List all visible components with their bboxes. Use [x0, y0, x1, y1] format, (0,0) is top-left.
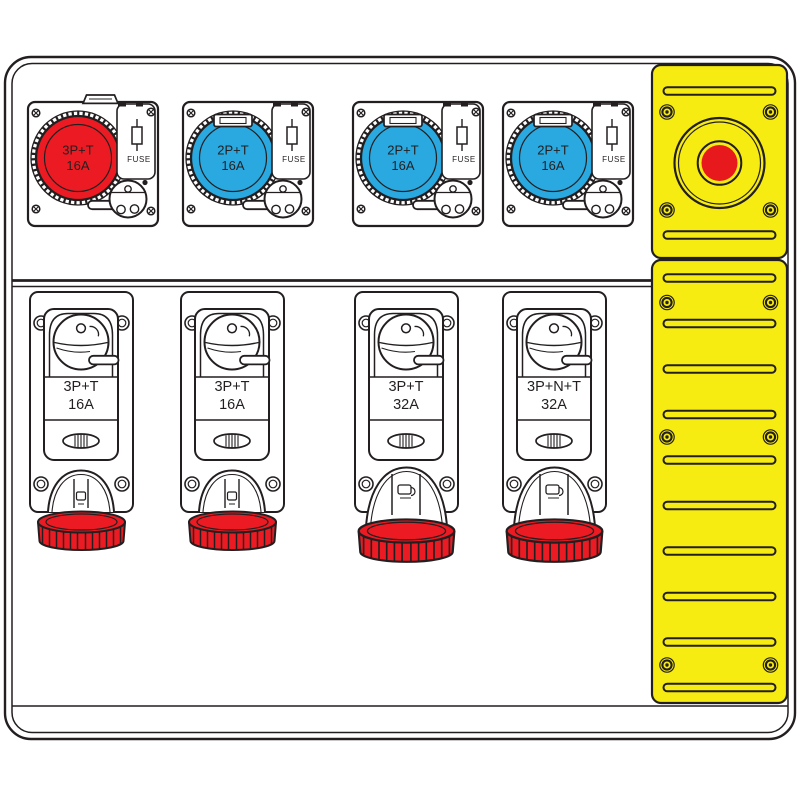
- socket-type-label: 3P+T: [63, 379, 98, 395]
- socket-unit-body: [28, 102, 158, 226]
- top-socket-unit-1: 3P+T 16A FUSE: [28, 95, 158, 226]
- socket-amp-label: 16A: [68, 397, 94, 413]
- socket-type-label: 3P+T: [62, 143, 93, 158]
- socket-amp-label: 32A: [541, 397, 567, 413]
- estop-red-cap: [702, 145, 738, 181]
- socket-amp-label: 32A: [393, 397, 419, 413]
- vent-panel: [652, 260, 787, 703]
- lid-clip: [384, 115, 422, 127]
- protection-cap: [38, 512, 125, 551]
- top-socket-unit-2: 2P+T 16A FUSE: [183, 102, 313, 226]
- fuse-label: FUSE: [452, 155, 476, 164]
- socket-type-label: 2P+T: [387, 143, 418, 158]
- screw-icon: [763, 105, 777, 119]
- bottom-socket-unit-1: 3P+T 16A: [30, 292, 133, 550]
- lid-clip: [534, 115, 572, 127]
- protection-cap: [359, 519, 455, 561]
- mounting-tab: [83, 95, 118, 103]
- fuse-label: FUSE: [127, 155, 151, 164]
- screw-icon: [763, 430, 777, 444]
- socket-type-label: 2P+T: [537, 143, 568, 158]
- socket-type-label: 3P+T: [388, 379, 423, 395]
- socket-type-label: 3P+N+T: [527, 379, 581, 395]
- compartment-divider: [12, 281, 652, 287]
- board-drawing: 3P+T 16A FUSE 2P+T 16A FUSE 2P+T 16A FUS…: [0, 0, 800, 800]
- screw-icon: [763, 658, 777, 672]
- fuse-label: FUSE: [602, 155, 626, 164]
- top-socket-unit-3: 2P+T 16A FUSE: [353, 102, 483, 226]
- socket-amp-label: 16A: [66, 158, 89, 173]
- bottom-socket-unit-2: 3P+T 16A: [181, 292, 284, 550]
- socket-amp-label: 16A: [221, 158, 244, 173]
- protection-cap: [189, 512, 276, 551]
- screw-icon: [660, 203, 674, 217]
- screw-icon: [660, 658, 674, 672]
- socket-amp-label: 16A: [391, 158, 414, 173]
- socket-type-label: 2P+T: [217, 143, 248, 158]
- screw-icon: [763, 295, 777, 309]
- socket-type-label: 3P+T: [214, 379, 249, 395]
- socket-amp-label: 16A: [541, 158, 564, 173]
- top-socket-unit-4: 2P+T 16A FUSE: [503, 102, 633, 226]
- distribution-board-diagram: 3P+T 16A FUSE 2P+T 16A FUSE 2P+T 16A FUS…: [0, 0, 800, 800]
- protection-cap: [507, 519, 603, 561]
- bottom-socket-unit-3: 3P+T 32A: [355, 292, 458, 562]
- screw-icon: [660, 105, 674, 119]
- emergency-stop-panel: [652, 65, 787, 258]
- socket-amp-label: 16A: [219, 397, 245, 413]
- screw-icon: [660, 295, 674, 309]
- screw-icon: [763, 203, 777, 217]
- screw-icon: [660, 430, 674, 444]
- lid-clip: [214, 115, 252, 127]
- fuse-label: FUSE: [282, 155, 306, 164]
- bottom-socket-unit-4: 3P+N+T 32A: [503, 292, 606, 562]
